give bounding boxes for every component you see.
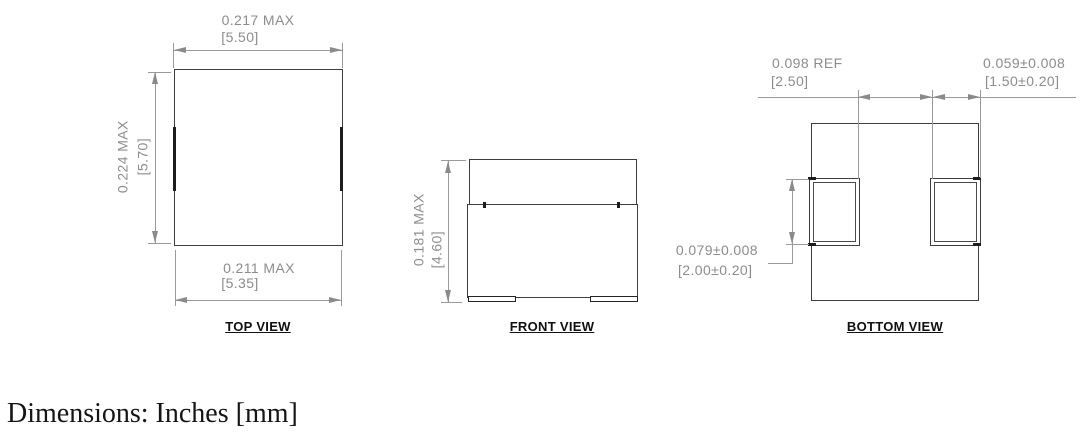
front-view-right-terminal-foot <box>590 296 638 302</box>
arrowhead-up <box>445 161 451 173</box>
extension-line <box>148 243 171 244</box>
pad-corner-mark <box>973 243 981 246</box>
arrowhead-right <box>920 94 932 100</box>
bottom-view-pad-width-mm: [1.50±0.20] <box>985 74 1059 89</box>
pad-corner-mark <box>808 177 816 180</box>
top-view-height-mm: [5.70] <box>135 127 150 187</box>
leader-line <box>792 244 793 264</box>
arrowhead-right <box>968 94 980 100</box>
dimension-line <box>175 300 341 301</box>
arrowhead-right <box>329 297 341 303</box>
top-view-width-bottom-mm: [5.35] <box>200 276 280 291</box>
arrowhead-left <box>933 94 945 100</box>
top-view-width-top-inches: 0.217 MAX <box>198 13 318 28</box>
extension-line <box>932 90 933 179</box>
extension-line <box>786 244 809 245</box>
arrowhead-down <box>152 231 158 243</box>
arrowhead-left <box>174 47 186 53</box>
top-view-width-top-mm: [5.50] <box>200 30 280 45</box>
extension-line <box>341 250 342 306</box>
arrowhead-up <box>152 72 158 84</box>
dimension-line <box>174 50 342 51</box>
bottom-view-pad-height-inches: 0.079±0.008 <box>658 243 758 258</box>
bottom-view-pad-gap-mm: [2.50] <box>771 74 808 89</box>
top-view-label: TOP VIEW <box>198 319 318 334</box>
arrowhead-right <box>330 47 342 53</box>
top-view-height-inches: 0.224 MAX <box>115 107 130 207</box>
top-view-width-bottom-inches: 0.211 MAX <box>199 261 319 276</box>
bottom-view-pad-gap-inches: 0.098 REF <box>772 56 843 71</box>
front-view-lower-body <box>467 204 638 298</box>
front-view-left-terminal-foot <box>468 296 516 302</box>
leader-line <box>768 263 793 264</box>
extension-line <box>858 90 859 179</box>
bottom-view-label: BOTTOM VIEW <box>835 319 955 334</box>
top-view-body <box>174 69 343 246</box>
front-view-seam-tick <box>617 202 620 208</box>
front-view-height-mm: [4.60] <box>429 220 444 280</box>
bottom-view-right-pad-inner <box>934 182 977 242</box>
top-view-right-terminal-edge <box>340 127 343 191</box>
front-view-seam-tick <box>483 202 486 208</box>
front-view-height-inches: 0.181 MAX <box>411 180 426 280</box>
arrowhead-left <box>175 297 187 303</box>
arrowhead-left <box>858 94 870 100</box>
bottom-view-pad-width-inches: 0.059±0.008 <box>983 56 1065 71</box>
dimensions-units-note: Dimensions: Inches [mm] <box>7 398 298 430</box>
dimension-line <box>758 97 1076 98</box>
arrowhead-down <box>445 290 451 302</box>
front-view-upper-body <box>469 159 637 205</box>
extension-line <box>342 43 343 68</box>
drawing-canvas: 0.217 MAX [5.50] 0.224 MAX [5.70] 0.211 … <box>0 0 1082 442</box>
front-view-label: FRONT VIEW <box>492 319 612 334</box>
top-view-left-terminal-edge <box>173 127 176 191</box>
bottom-view-pad-height-mm: [2.00±0.20] <box>678 263 752 278</box>
pad-corner-mark <box>808 243 816 246</box>
dimension-line <box>448 161 449 302</box>
dimension-line <box>155 72 156 243</box>
bottom-view-left-pad-inner <box>813 182 856 242</box>
extension-line <box>980 90 981 178</box>
arrowhead-up <box>789 179 795 191</box>
extension-line <box>441 302 462 303</box>
arrowhead-down <box>789 232 795 244</box>
